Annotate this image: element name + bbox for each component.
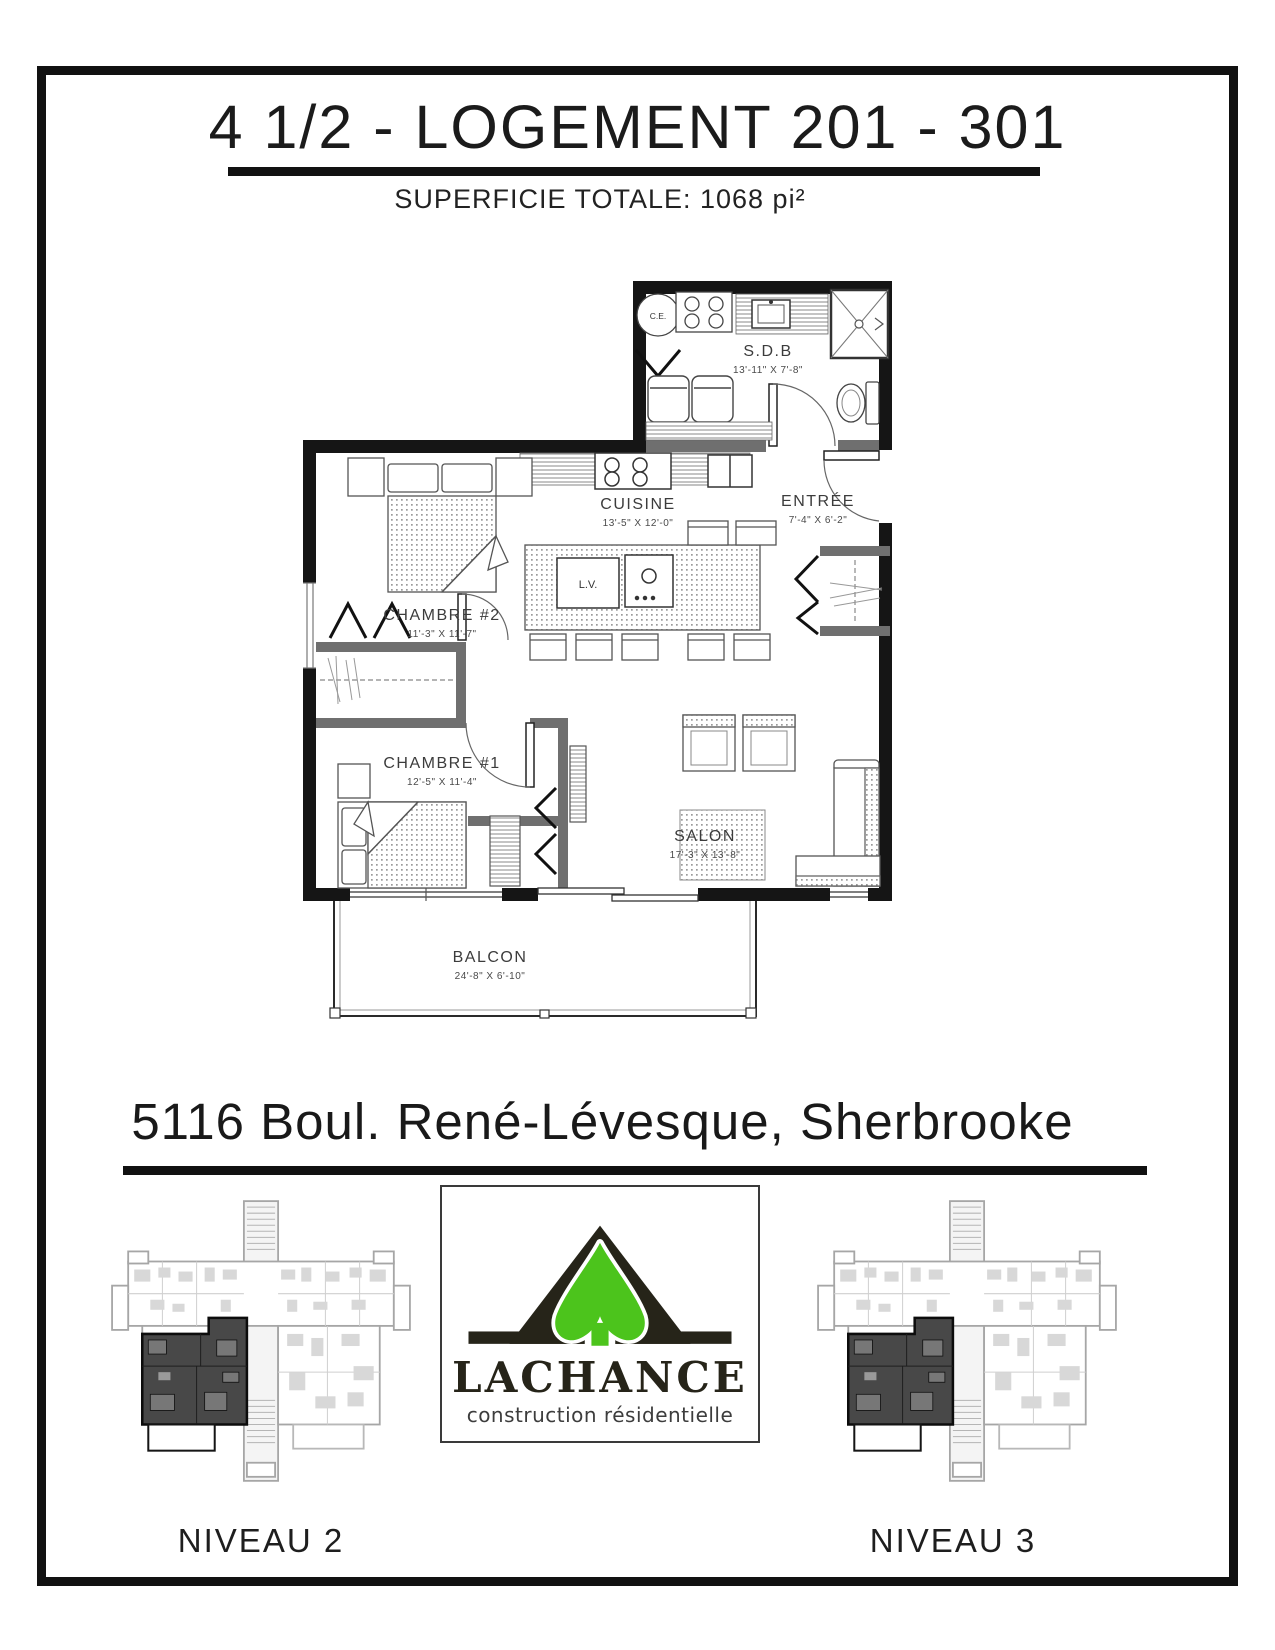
svg-text:SALON: SALON	[674, 828, 736, 845]
dishwasher: L.V.	[557, 558, 619, 608]
page-subtitle: SUPERFICIE TOTALE: 1068 pi²	[0, 184, 1200, 215]
svg-text:12'-5" X 11'-4": 12'-5" X 11'-4"	[407, 777, 477, 788]
room-label-balcon: BALCON 24'-8" X 6'-10"	[453, 949, 528, 982]
room-label-entree: ENTRÉE 7'-4" X 6'-2"	[781, 491, 855, 526]
svg-text:L.V.: L.V.	[579, 579, 598, 591]
bed-chambre-2	[348, 458, 532, 592]
highlighted-unit	[142, 1318, 247, 1451]
mini-plan-niveau-2	[100, 1193, 422, 1495]
sectional-sofa	[796, 760, 880, 886]
svg-text:7'-4" X 6'-2": 7'-4" X 6'-2"	[789, 515, 848, 526]
washer-dryer	[648, 376, 733, 422]
level-label-niveau-2: NIVEAU 2	[100, 1522, 422, 1560]
toilet	[837, 382, 879, 424]
balcony	[330, 901, 756, 1018]
svg-text:S.D.B: S.D.B	[743, 343, 792, 360]
level-label-niveau-3: NIVEAU 3	[792, 1522, 1114, 1560]
logo-box: LACHANCE construction résidentielle	[440, 1185, 760, 1443]
logo-brand: LACHANCE	[452, 1357, 748, 1399]
room-label-chambre-2: CHAMBRE #2 11'-3" X 11'-7"	[383, 607, 500, 640]
refrigerator	[708, 455, 752, 487]
rug	[680, 810, 765, 880]
svg-text:BALCON: BALCON	[453, 949, 528, 966]
shower	[831, 290, 888, 358]
svg-text:CHAMBRE #1: CHAMBRE #1	[383, 755, 500, 772]
tv-console	[570, 746, 586, 822]
bathroom-vanity-sink	[736, 294, 828, 334]
water-heater: C.E.	[637, 294, 679, 336]
svg-text:CUISINE: CUISINE	[600, 496, 675, 513]
room-label-salon: SALON 17'-3" X 13'-8"	[670, 828, 741, 861]
mini-plan-niveau-3	[806, 1193, 1128, 1495]
room-label-sdb: S.D.B 13'-11" X 7'-8"	[733, 343, 803, 376]
laundry-counter	[646, 422, 772, 440]
svg-text:13'-5" X 12'-0": 13'-5" X 12'-0"	[603, 518, 674, 529]
logo-tree-icon	[450, 1199, 750, 1361]
address-line: 5116 Boul. René-Lévesque, Sherbrooke	[0, 1092, 1205, 1151]
room-label-chambre-1: CHAMBRE #1 12'-5" X 11'-4"	[383, 755, 500, 788]
svg-text:ENTRÉE: ENTRÉE	[781, 491, 855, 510]
stove	[595, 453, 671, 489]
cooktop-burners	[676, 292, 732, 332]
svg-text:C.E.: C.E.	[650, 311, 667, 321]
entry-closet	[796, 556, 882, 634]
page-title: 4 1/2 - LOGEMENT 201 - 301	[37, 92, 1238, 162]
title-divider	[228, 167, 1040, 176]
logo-tagline: construction résidentielle	[467, 1403, 734, 1427]
address-divider	[123, 1166, 1147, 1175]
floor-plan: C.E. L.	[290, 268, 910, 1038]
svg-text:CHAMBRE #2: CHAMBRE #2	[383, 607, 500, 624]
dining-chairs	[688, 521, 776, 545]
armchairs	[683, 715, 795, 771]
svg-text:11'-3" X 11'-7": 11'-3" X 11'-7"	[407, 629, 476, 640]
highlighted-unit	[848, 1318, 953, 1451]
svg-text:17'-3" X 13'-8": 17'-3" X 13'-8"	[670, 850, 741, 861]
bar-stools	[530, 634, 770, 660]
linen-closet-doors	[536, 788, 556, 874]
island-sink	[625, 555, 673, 607]
svg-text:24'-8" X 6'-10": 24'-8" X 6'-10"	[455, 971, 526, 982]
dresser-chambre-1	[490, 816, 520, 886]
room-label-cuisine: CUISINE 13'-5" X 12'-0"	[600, 496, 675, 529]
svg-text:13'-11" X 7'-8": 13'-11" X 7'-8"	[733, 365, 803, 376]
